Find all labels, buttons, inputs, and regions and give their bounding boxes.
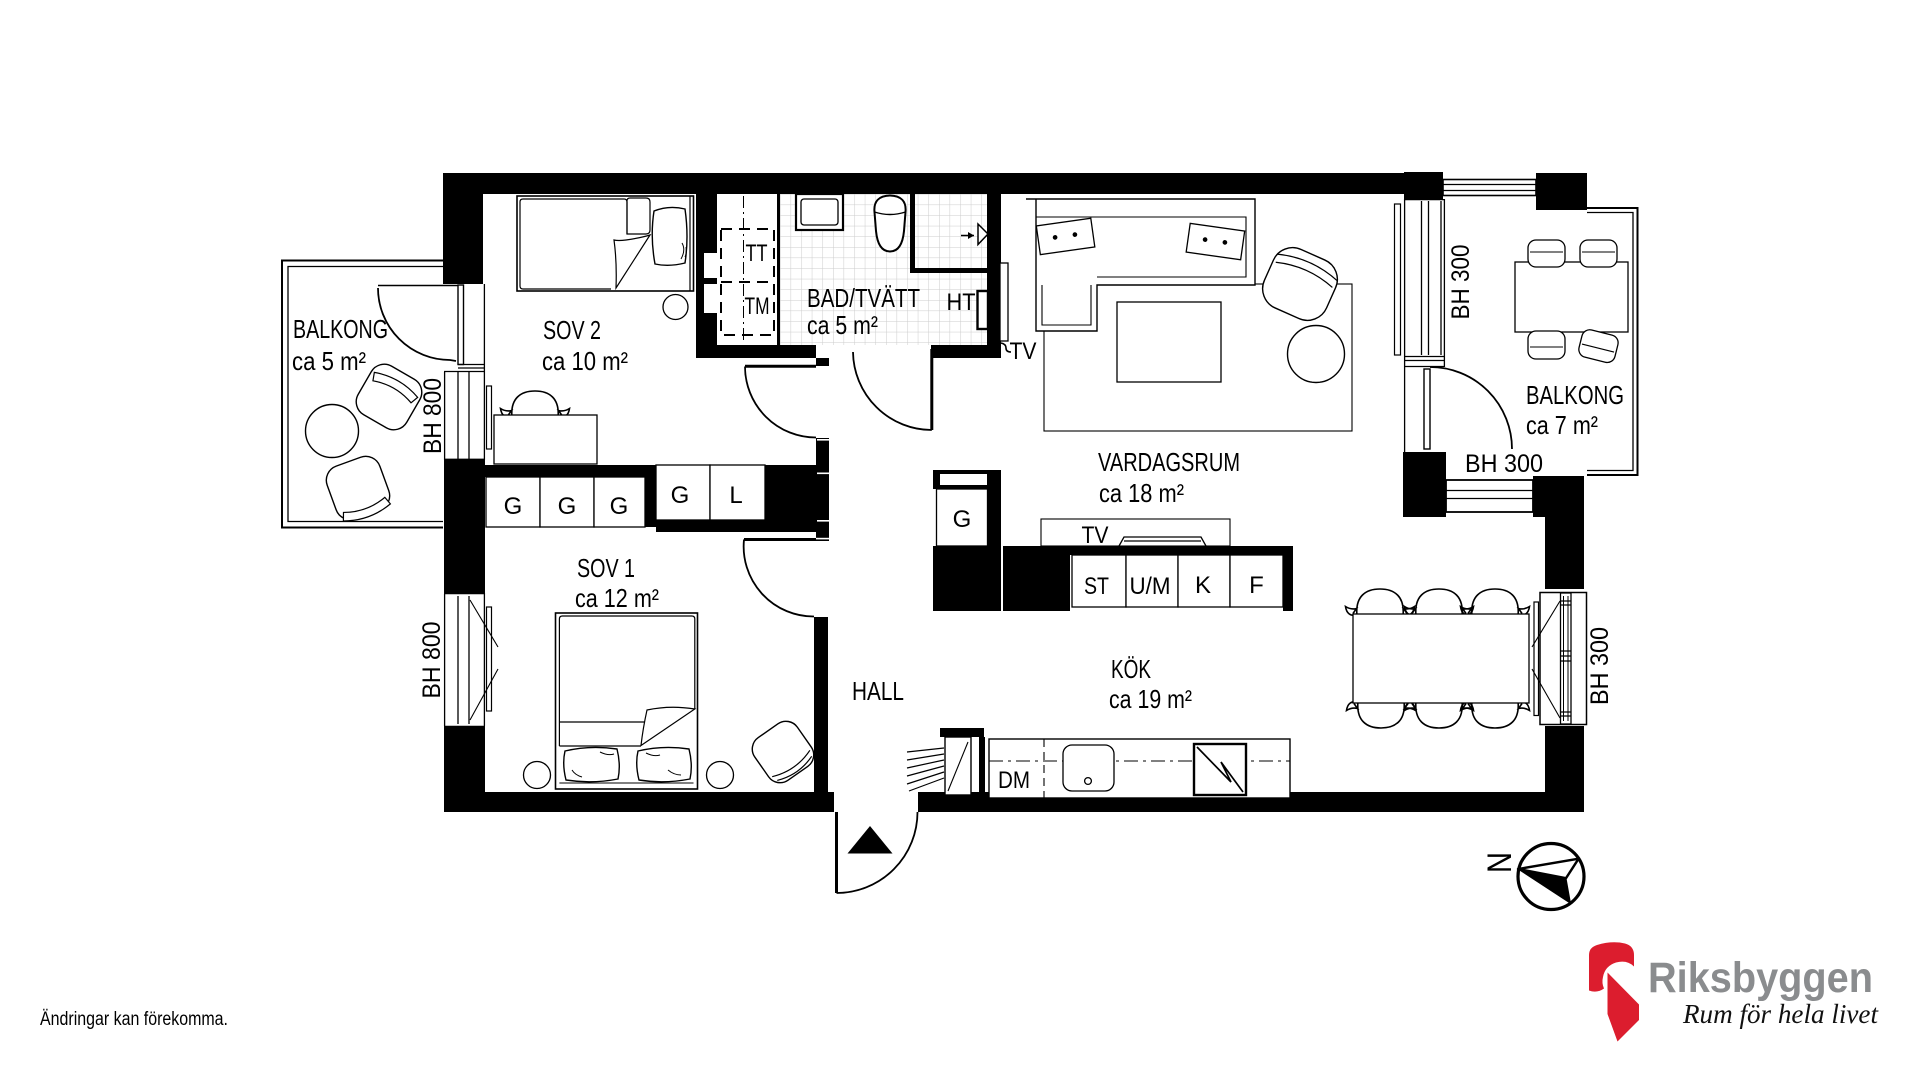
svg-text:L: L xyxy=(729,482,742,509)
svg-text:G: G xyxy=(953,506,972,533)
svg-text:KÖK: KÖK xyxy=(1111,654,1151,684)
svg-text:ca 18 m²: ca 18 m² xyxy=(1099,478,1184,508)
svg-text:ca 10 m²: ca 10 m² xyxy=(542,346,628,376)
svg-text:BALKONG: BALKONG xyxy=(1526,380,1624,410)
svg-text:TV: TV xyxy=(1082,522,1109,549)
svg-text:ca 5 m²: ca 5 m² xyxy=(807,310,878,340)
svg-text:N: N xyxy=(1481,852,1519,873)
svg-text:BH 300: BH 300 xyxy=(1465,450,1543,478)
svg-text:ST: ST xyxy=(1084,573,1109,600)
svg-text:ca 5 m²: ca 5 m² xyxy=(292,346,366,376)
svg-text:BAD/TVÄTT: BAD/TVÄTT xyxy=(807,283,920,313)
svg-text:G: G xyxy=(504,493,523,520)
svg-text:TV: TV xyxy=(1010,338,1037,365)
svg-text:HT: HT xyxy=(947,289,976,316)
svg-text:Rum för hela livet: Rum för hela livet xyxy=(1682,999,1879,1029)
svg-text:Riksbyggen: Riksbyggen xyxy=(1648,954,1873,1002)
svg-text:K: K xyxy=(1195,572,1211,599)
svg-text:ca 7 m²: ca 7 m² xyxy=(1526,410,1598,440)
svg-text:TT: TT xyxy=(746,240,768,267)
svg-text:ca 19 m²: ca 19 m² xyxy=(1109,684,1192,714)
svg-text:DM: DM xyxy=(998,767,1030,794)
svg-text:SOV 2: SOV 2 xyxy=(543,315,601,345)
svg-text:G: G xyxy=(671,482,690,509)
svg-text:BH 300: BH 300 xyxy=(1447,245,1475,320)
svg-text:U/M: U/M xyxy=(1130,573,1171,600)
svg-text:BH 800: BH 800 xyxy=(419,378,447,454)
svg-text:TM: TM xyxy=(745,293,770,320)
svg-text:HALL: HALL xyxy=(852,676,904,706)
svg-text:G: G xyxy=(610,493,629,520)
svg-text:VARDAGSRUM: VARDAGSRUM xyxy=(1098,447,1240,477)
svg-text:BH 300: BH 300 xyxy=(1586,627,1614,705)
svg-text:F: F xyxy=(1249,572,1264,599)
svg-text:G: G xyxy=(558,493,577,520)
svg-text:SOV 1: SOV 1 xyxy=(577,553,635,583)
svg-text:BALKONG: BALKONG xyxy=(293,314,388,344)
svg-text:BH 800: BH 800 xyxy=(418,622,446,699)
svg-text:Ändringar kan förekomma.: Ändringar kan förekomma. xyxy=(40,1009,228,1030)
svg-text:ca 12 m²: ca 12 m² xyxy=(575,583,659,613)
